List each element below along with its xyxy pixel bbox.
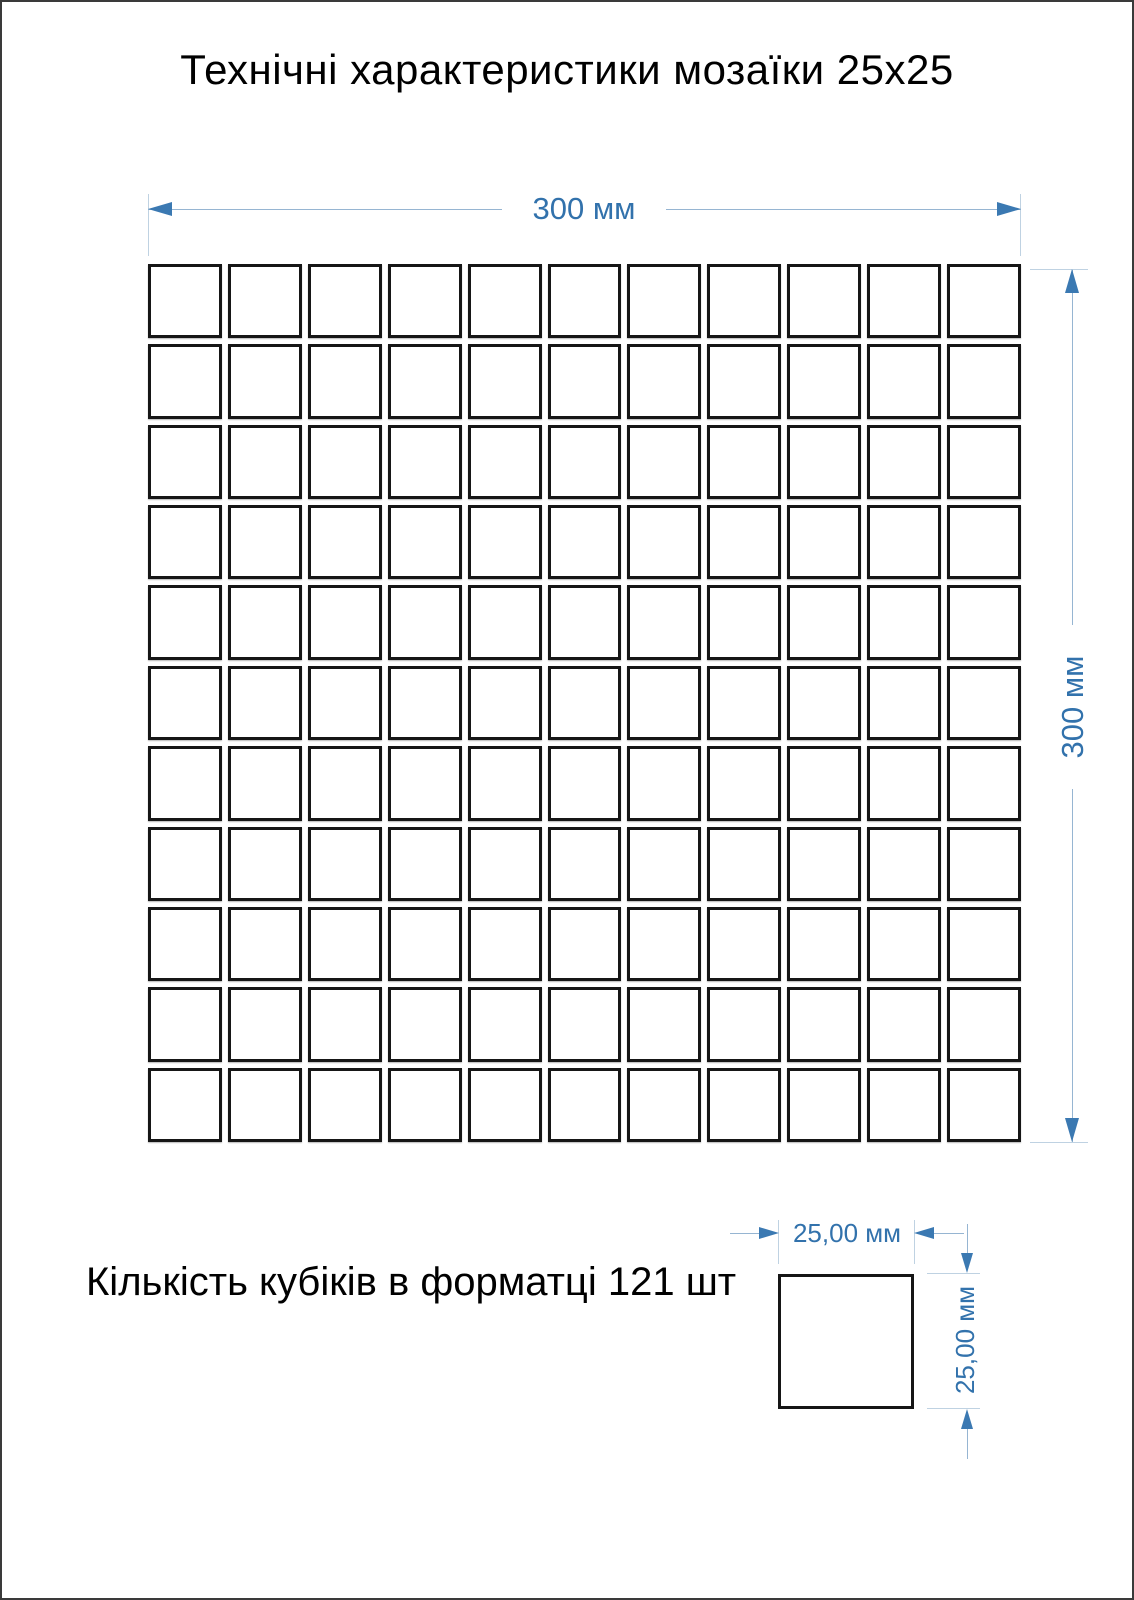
mosaic-cell — [308, 907, 382, 981]
mosaic-cell — [148, 344, 222, 418]
mosaic-cell — [148, 987, 222, 1061]
arrow-down-icon — [961, 1253, 973, 1273]
mosaic-cell — [148, 827, 222, 901]
cubes-count-note: Кількість кубіків в форматці 121 шт — [86, 1260, 736, 1305]
mosaic-cell — [308, 344, 382, 418]
mosaic-cell — [388, 987, 462, 1061]
mosaic-cell — [548, 505, 622, 579]
mosaic-cell — [867, 907, 941, 981]
mosaic-cell — [468, 264, 542, 338]
mosaic-cell — [787, 344, 861, 418]
mosaic-cell — [148, 505, 222, 579]
mosaic-cell — [228, 344, 302, 418]
mosaic-cell — [548, 585, 622, 659]
mosaic-cell — [627, 505, 701, 579]
mosaic-cell — [867, 746, 941, 820]
cube-width-label: 25,00 мм — [782, 1220, 912, 1246]
mosaic-cell — [468, 1068, 542, 1142]
mosaic-cell — [627, 666, 701, 740]
mosaic-cell — [308, 987, 382, 1061]
mosaic-cell — [787, 505, 861, 579]
mosaic-cell — [707, 425, 781, 499]
arrow-tail-top — [967, 1224, 968, 1253]
mosaic-cell — [228, 264, 302, 338]
mosaic-grid — [148, 264, 1021, 1142]
mosaic-cell — [308, 666, 382, 740]
mosaic-cell — [707, 264, 781, 338]
mosaic-cell — [228, 666, 302, 740]
mosaic-cell — [388, 585, 462, 659]
mosaic-cell — [388, 1068, 462, 1142]
mosaic-cell — [548, 666, 622, 740]
mosaic-cell — [947, 505, 1021, 579]
arrow-right-icon — [759, 1227, 779, 1239]
mosaic-cell — [947, 344, 1021, 418]
mosaic-cell — [707, 827, 781, 901]
mosaic-cell — [707, 666, 781, 740]
mosaic-cell — [148, 1068, 222, 1142]
mosaic-cell — [627, 344, 701, 418]
mosaic-cell — [308, 505, 382, 579]
extension-line-top — [1030, 269, 1088, 270]
mosaic-cell — [627, 827, 701, 901]
mosaic-cell — [627, 987, 701, 1061]
mosaic-cell — [228, 585, 302, 659]
arrow-down-icon — [1065, 1118, 1079, 1142]
mosaic-cell — [468, 666, 542, 740]
mosaic-cell — [787, 264, 861, 338]
mosaic-cell — [787, 425, 861, 499]
mosaic-cell — [148, 425, 222, 499]
extension-line-bottom — [1030, 1142, 1088, 1143]
arrow-left-icon — [148, 202, 172, 216]
mosaic-cell — [787, 746, 861, 820]
arrow-tail-left — [730, 1233, 760, 1234]
mosaic-cell — [388, 666, 462, 740]
mosaic-cell — [707, 987, 781, 1061]
mosaic-cell — [867, 987, 941, 1061]
mosaic-cell — [548, 746, 622, 820]
mosaic-cell — [867, 666, 941, 740]
sheet-width-label: 300 мм — [502, 193, 666, 224]
mosaic-cell — [228, 505, 302, 579]
mosaic-cell — [388, 505, 462, 579]
mosaic-cell — [148, 264, 222, 338]
mosaic-cell — [707, 746, 781, 820]
arrow-up-icon — [961, 1409, 973, 1429]
mosaic-cell — [548, 425, 622, 499]
mosaic-cell — [148, 666, 222, 740]
mosaic-cell — [627, 264, 701, 338]
mosaic-cell — [308, 585, 382, 659]
mosaic-cell — [228, 1068, 302, 1142]
mosaic-cell — [308, 425, 382, 499]
mosaic-cell — [707, 907, 781, 981]
mosaic-cell — [787, 827, 861, 901]
mosaic-cell — [947, 666, 1021, 740]
mosaic-cell — [308, 264, 382, 338]
mosaic-cell — [947, 1068, 1021, 1142]
mosaic-cell — [388, 827, 462, 901]
mosaic-cell — [947, 987, 1021, 1061]
mosaic-cell — [228, 987, 302, 1061]
mosaic-cell — [388, 907, 462, 981]
mosaic-cell — [947, 746, 1021, 820]
mosaic-cell — [787, 1068, 861, 1142]
mosaic-cell — [707, 585, 781, 659]
mosaic-cell — [228, 746, 302, 820]
mosaic-cell — [548, 907, 622, 981]
mosaic-cell — [228, 907, 302, 981]
arrow-left-icon — [914, 1227, 934, 1239]
mosaic-cell — [548, 827, 622, 901]
mosaic-cell — [468, 425, 542, 499]
page-title: Технічні характеристики мозаїки 25х25 — [2, 46, 1132, 94]
mosaic-cell — [468, 987, 542, 1061]
mosaic-cell — [947, 425, 1021, 499]
mosaic-cell — [867, 344, 941, 418]
mosaic-cell — [867, 425, 941, 499]
mosaic-cell — [548, 344, 622, 418]
mosaic-cell — [468, 585, 542, 659]
mosaic-cell — [228, 827, 302, 901]
mosaic-cell — [707, 344, 781, 418]
mosaic-cell — [947, 585, 1021, 659]
mosaic-cell — [867, 505, 941, 579]
mosaic-cell — [787, 666, 861, 740]
mosaic-cell — [707, 505, 781, 579]
mosaic-cell — [388, 344, 462, 418]
mosaic-cell — [548, 987, 622, 1061]
mosaic-cell — [787, 585, 861, 659]
mosaic-cell — [148, 907, 222, 981]
mosaic-cell — [947, 827, 1021, 901]
mosaic-cell — [867, 264, 941, 338]
mosaic-cell — [787, 987, 861, 1061]
mosaic-cell — [627, 907, 701, 981]
mosaic-cell — [388, 425, 462, 499]
mosaic-cell — [627, 1068, 701, 1142]
mosaic-cell — [308, 746, 382, 820]
mosaic-cell — [148, 585, 222, 659]
mosaic-cell — [308, 827, 382, 901]
mosaic-cell — [787, 907, 861, 981]
mosaic-cell — [627, 585, 701, 659]
mosaic-cell — [707, 1068, 781, 1142]
sheet-height-label: 300 мм — [1057, 625, 1089, 789]
cube-height-label: 25,00 мм — [951, 1275, 979, 1405]
arrow-up-icon — [1065, 269, 1079, 293]
mosaic-cell — [867, 1068, 941, 1142]
single-cube — [778, 1274, 914, 1409]
mosaic-cell — [627, 425, 701, 499]
mosaic-cell — [627, 746, 701, 820]
mosaic-cell — [388, 746, 462, 820]
mosaic-cell — [148, 746, 222, 820]
mosaic-cell — [308, 1068, 382, 1142]
spec-sheet-page: Технічні характеристики мозаїки 25х25 30… — [0, 0, 1134, 1600]
mosaic-cell — [468, 907, 542, 981]
arrow-tail-bottom — [967, 1429, 968, 1459]
mosaic-cell — [228, 425, 302, 499]
extension-line-top — [927, 1273, 980, 1274]
arrow-right-icon — [997, 202, 1021, 216]
mosaic-cell — [468, 344, 542, 418]
mosaic-cell — [867, 585, 941, 659]
mosaic-cell — [388, 264, 462, 338]
mosaic-cell — [947, 264, 1021, 338]
mosaic-cell — [947, 907, 1021, 981]
mosaic-cell — [468, 505, 542, 579]
arrow-tail-right — [934, 1233, 964, 1234]
mosaic-cell — [548, 264, 622, 338]
mosaic-cell — [468, 827, 542, 901]
mosaic-cell — [867, 827, 941, 901]
mosaic-cell — [468, 746, 542, 820]
mosaic-cell — [548, 1068, 622, 1142]
